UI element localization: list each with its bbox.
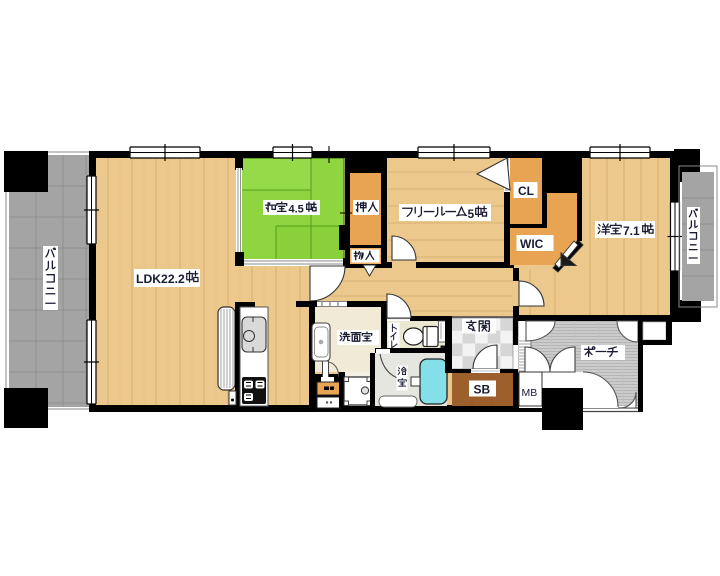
svg-text:5: 5: [468, 207, 475, 221]
svg-text:MB: MB: [522, 387, 538, 399]
svg-text:CL: CL: [518, 184, 534, 198]
svg-text:SB: SB: [474, 383, 491, 397]
svg-text:LDK22.2: LDK22.2: [136, 272, 185, 286]
svg-text:WIC: WIC: [520, 237, 544, 251]
svg-text:4.5: 4.5: [289, 204, 304, 216]
svg-text:7.1: 7.1: [623, 224, 640, 238]
